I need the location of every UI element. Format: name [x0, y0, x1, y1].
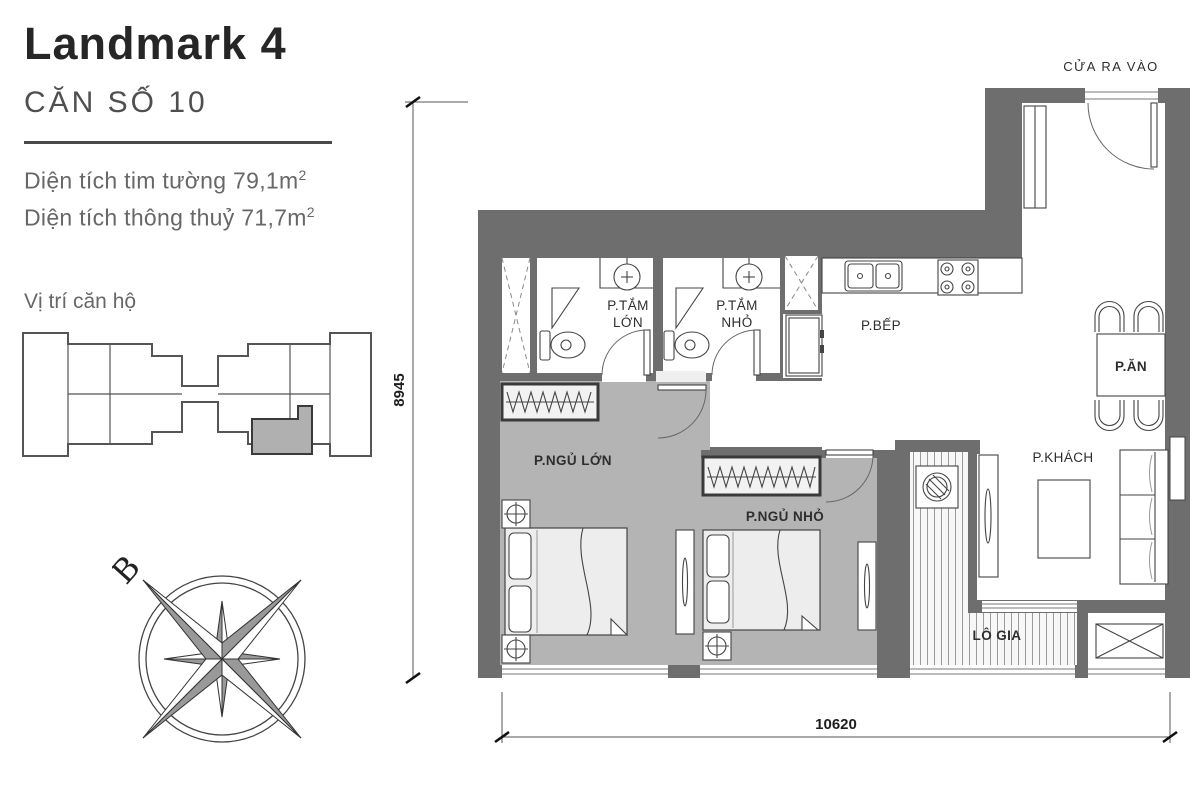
area-net-clear: Diện tích thông thuỷ 71,7m2 — [24, 204, 315, 232]
nightstand — [502, 635, 530, 663]
area-gross-sup: 2 — [298, 167, 306, 183]
kitchen-sink — [845, 261, 902, 291]
fridge — [786, 315, 824, 376]
bath-small-door-opening — [712, 371, 756, 382]
bed-small-bed — [703, 530, 820, 630]
divider — [24, 141, 332, 144]
sofa — [1120, 450, 1168, 584]
toilet-large — [540, 331, 585, 360]
dim-vertical: 8945 — [391, 97, 468, 683]
nightstand — [703, 632, 731, 660]
loggia-railing — [910, 665, 1165, 678]
compass-north-label: B — [112, 548, 148, 591]
bed-large-window — [502, 665, 668, 678]
stove — [938, 260, 978, 295]
dresser-bed-small — [858, 542, 876, 630]
info-panel: Landmark 4 CĂN SỐ 10 Diện tích tim tường… — [0, 0, 400, 800]
living-loggia-window — [982, 601, 1077, 612]
dim-horizontal: 10620 — [495, 692, 1177, 743]
project-title: Landmark 4 — [24, 18, 394, 70]
compass-rose: B — [112, 543, 332, 763]
wardrobe-bed-small — [703, 457, 820, 495]
wall-band — [895, 440, 980, 454]
area-net-sup: 2 — [307, 204, 315, 220]
dim-width-label: 10620 — [815, 716, 857, 733]
bath-large-label-1: P.TẮM — [607, 298, 649, 313]
coffee-table — [1038, 480, 1090, 558]
bath-large-label-2: LỚN — [613, 315, 643, 330]
toilet-small — [664, 331, 709, 360]
tv-console — [979, 455, 998, 577]
wardrobe-bed-large — [502, 384, 598, 420]
ac-unit — [1096, 624, 1163, 658]
bath-small-label-2: NHỎ — [721, 315, 752, 330]
living-label: P.KHÁCH — [1032, 450, 1093, 465]
bed-large-label: P.NGỦ LỚN — [534, 453, 612, 468]
shoe-cabinet — [1024, 106, 1046, 208]
entrance-label: CỬA RA VÀO — [1063, 59, 1158, 74]
bed-large — [505, 528, 627, 635]
area-gross-text: Diện tích tim tường 79,1m — [24, 168, 298, 194]
location-title: Vị trí căn hộ — [24, 290, 136, 314]
area-gross-wall: Diện tích tim tường 79,1m2 — [24, 167, 307, 195]
loggia-label: LÔ GIA — [973, 628, 1022, 643]
area-net-text: Diện tích thông thuỷ 71,7m — [24, 205, 307, 231]
kitchen-label: P.BẾP — [861, 318, 901, 333]
dining-label: P.ĂN — [1115, 359, 1147, 374]
key-plan — [22, 326, 372, 463]
bath-small-label-1: P.TẮM — [716, 298, 758, 313]
bed-small-window — [700, 665, 877, 678]
bath-large-door-opening — [602, 371, 646, 382]
entrance-opening — [1085, 88, 1158, 103]
sofa-wall-niche — [1170, 437, 1185, 500]
dresser-bed-large — [676, 530, 694, 634]
washing-machine — [916, 466, 958, 508]
unit-number: CĂN SỐ 10 — [24, 86, 208, 120]
nightstand — [502, 500, 530, 528]
hallway-floor — [710, 381, 895, 447]
bed-large-door-opening — [656, 371, 706, 382]
unit-highlight — [252, 406, 312, 454]
bed-small-label: P.NGỦ NHỎ — [746, 509, 824, 524]
